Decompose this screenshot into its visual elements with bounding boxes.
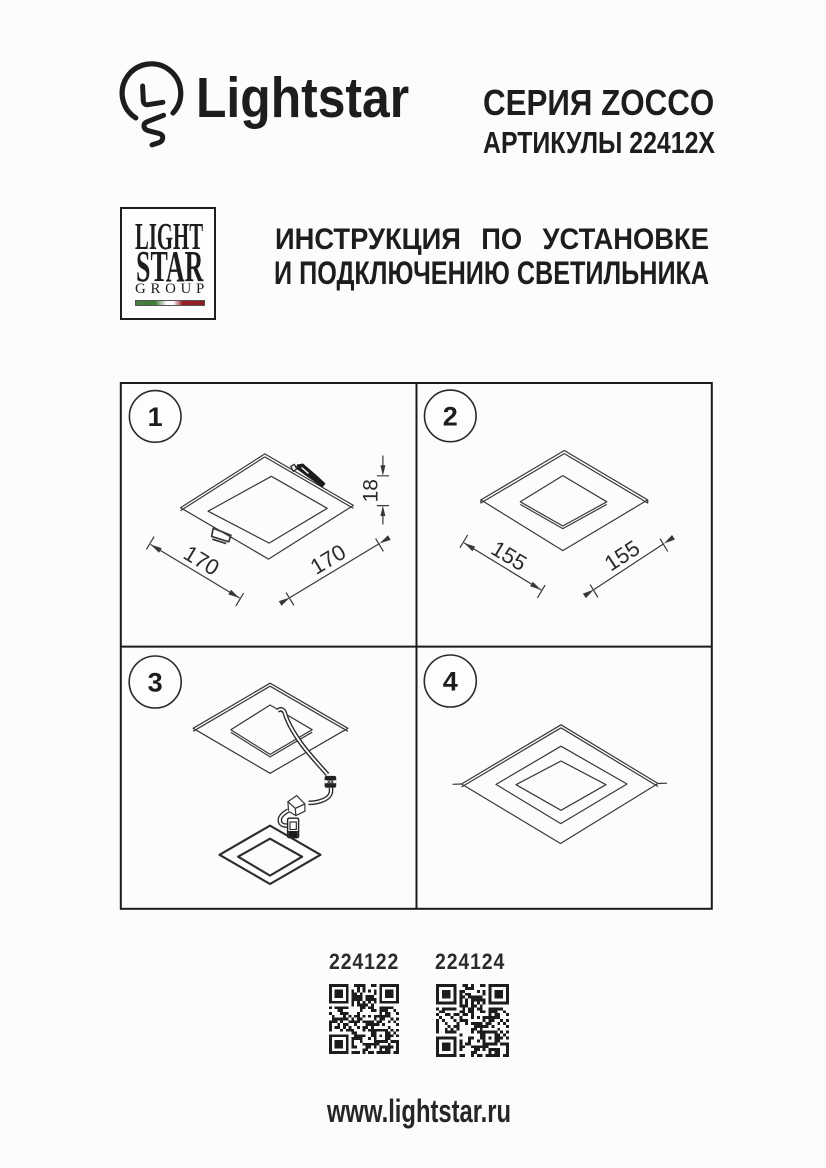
svg-text:3: 3 — [148, 668, 163, 698]
svg-text:18: 18 — [360, 479, 383, 502]
svg-text:155: 155 — [487, 536, 531, 576]
svg-text:4: 4 — [443, 667, 458, 697]
svg-text:170: 170 — [306, 539, 350, 579]
svg-text:2: 2 — [443, 402, 458, 432]
svg-text:1: 1 — [148, 402, 163, 432]
svg-text:155: 155 — [600, 535, 644, 576]
svg-text:170: 170 — [179, 540, 223, 580]
